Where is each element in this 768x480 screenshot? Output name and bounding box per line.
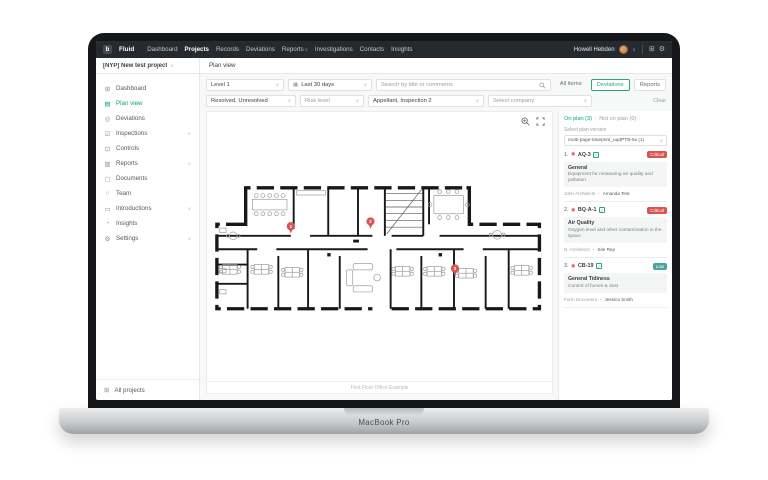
documents-icon: ▢ xyxy=(104,175,111,183)
sidebar-all-projects[interactable]: ⊞All projects xyxy=(96,379,199,400)
search-input[interactable] xyxy=(381,82,536,88)
chevron-down-icon: ∨ xyxy=(188,131,191,137)
nav-item-deviations[interactable]: Deviations xyxy=(246,46,275,53)
card-title: General xyxy=(568,165,663,171)
deviation-card[interactable]: 1. ◉ AQ-3 ✓ Critical General Equipment f… xyxy=(564,146,667,202)
card-description: Equipment for measuring air quality and … xyxy=(568,172,663,184)
svg-text:3: 3 xyxy=(454,266,457,272)
laptop-screen-frame: b Fluid Dashboard Projects Records Devia… xyxy=(88,33,680,408)
card-header: 1. ◉ AQ-3 ✓ Critical xyxy=(564,151,667,158)
filter-row-1: Level 1∨ ▦Last 30 days∨ All items Deviat… xyxy=(206,79,666,91)
gear-icon[interactable]: ⚙ xyxy=(659,46,665,53)
card-reporter: Jessica Smith xyxy=(605,297,633,302)
sidebar-item-settings[interactable]: ⚙Settings∨ xyxy=(96,231,199,246)
calendar-icon: ▦ xyxy=(293,82,298,88)
insights-icon: ◔ xyxy=(104,220,111,227)
dot-separator: • xyxy=(598,191,600,196)
all-projects-label: All projects xyxy=(114,387,144,394)
breadcrumb: Plan view xyxy=(200,58,244,73)
sidebar-item-label: Insights xyxy=(116,220,137,227)
sidebar-item-label: Settings xyxy=(116,235,138,242)
chevron-down-icon: ∨ xyxy=(476,98,479,104)
nav-right-group: Howell Hebden ∨ ⊞ ⚙ xyxy=(574,45,665,54)
sidebar-item-label: Deviations xyxy=(116,115,145,122)
card-number: 2. xyxy=(564,207,569,213)
sidebar-item-introductions[interactable]: ▭Introductions∨ xyxy=(96,201,199,216)
plan-tools xyxy=(521,117,545,126)
deviation-card[interactable]: 3. ◉ CB-19 ✓ Low General Tidiness Contro… xyxy=(564,258,667,308)
nav-item-dashboard[interactable]: Dashboard xyxy=(147,46,177,53)
svg-text:2: 2 xyxy=(369,219,372,225)
sidebar-item-label: Controls xyxy=(116,145,139,152)
checkbox-icon[interactable]: ✓ xyxy=(593,152,599,158)
sidebar-item-label: Reports xyxy=(116,160,138,167)
checkbox-icon[interactable]: ✓ xyxy=(596,263,602,269)
inspections-icon: ☑ xyxy=(104,130,111,138)
fullscreen-icon[interactable] xyxy=(536,117,545,126)
tab-deviations[interactable]: Deviations xyxy=(591,79,630,91)
sidebar-item-label: Plan view xyxy=(116,100,142,107)
chevron-down-icon: ∨ xyxy=(170,63,173,69)
plan-card: 1 2 3 xyxy=(206,111,553,394)
tab-on-plan[interactable]: On plan (3) xyxy=(564,116,592,122)
company-placeholder: Select company xyxy=(493,98,534,104)
introductions-icon: ▭ xyxy=(104,205,111,213)
sidebar-item-documents[interactable]: ▢Documents xyxy=(96,171,199,186)
team-icon: ○ xyxy=(104,190,111,197)
card-assignee: Form Document xyxy=(564,297,597,302)
card-body: General Equipment for measuring air qual… xyxy=(564,162,667,188)
settings-icon: ⚙ xyxy=(104,235,111,243)
card-footer: N. Architects • Site Rep xyxy=(564,247,667,252)
card-description: Oxygen level and other contamination in … xyxy=(568,228,663,240)
plan-area: 1 2 3 xyxy=(206,111,558,400)
company-select[interactable]: Select company∨ xyxy=(488,95,592,107)
card-code: BQ-A-1 xyxy=(578,207,597,213)
card-code: CB-19 xyxy=(578,263,594,269)
card-footer: John Architects • Amanda Test xyxy=(564,191,667,196)
dot-separator: • xyxy=(593,247,595,252)
sidebar-item-insights[interactable]: ◔Insights xyxy=(96,216,199,231)
user-name: Howell Hebden xyxy=(574,47,615,53)
sidebar: ⊞Dashboard ▤Plan view ◎Deviations ☑Inspe… xyxy=(96,74,200,400)
status-select-value: Resolved, Unresolved xyxy=(211,98,268,104)
level-select[interactable]: Level 1∨ xyxy=(206,79,284,91)
nav-item-reports[interactable]: Reports∨ xyxy=(282,46,308,53)
sidebar-item-plan-view[interactable]: ▤Plan view xyxy=(96,96,199,111)
tab-all-items[interactable]: All items xyxy=(555,79,587,91)
app-body: ⊞Dashboard ▤Plan view ◎Deviations ☑Inspe… xyxy=(96,74,672,400)
chevron-down-icon: ∨ xyxy=(188,206,191,212)
status-badge: Critical xyxy=(647,151,667,158)
sidebar-item-controls[interactable]: ⊡Controls xyxy=(96,141,199,156)
status-badge: Low xyxy=(653,263,667,270)
all-projects-icon: ⊞ xyxy=(104,386,109,394)
tab-reports[interactable]: Reports xyxy=(634,79,666,91)
content-row: 1 2 3 xyxy=(206,111,672,400)
dashboard-icon: ⊞ xyxy=(104,85,111,93)
divider xyxy=(642,45,643,54)
status-select[interactable]: Resolved, Unresolved∨ xyxy=(206,95,296,107)
chevron-down-icon: ∨ xyxy=(305,47,308,52)
sidebar-item-label: Introductions xyxy=(116,205,151,212)
card-code: AQ-3 xyxy=(578,152,591,158)
chevron-down-icon: ∨ xyxy=(364,82,367,88)
card-reporter: Site Rep xyxy=(597,247,615,252)
card-header: 3. ◉ CB-19 ✓ Low xyxy=(564,263,667,270)
nav-item-contacts[interactable]: Contacts xyxy=(360,46,384,53)
laptop-notch xyxy=(344,408,424,415)
nav-item-investigations[interactable]: Investigations xyxy=(315,46,353,53)
chevron-down-icon[interactable]: ∨ xyxy=(633,47,636,53)
chevron-down-icon: ∨ xyxy=(288,98,291,104)
card-title: Air Quality xyxy=(568,220,663,226)
filter-row-2: Resolved, Unresolved∨ Risk level∨ Appell… xyxy=(206,95,666,107)
card-description: Control of fumes & dust xyxy=(568,284,663,290)
tab-not-on-plan[interactable]: Not on plan (0) xyxy=(599,116,636,122)
divider: | xyxy=(595,116,596,122)
sidebar-item-team[interactable]: ○Team xyxy=(96,186,199,201)
macbook-label: MacBook Pro xyxy=(59,418,709,427)
nav-reports-label: Reports xyxy=(282,46,304,53)
nav-item-insights[interactable]: Insights xyxy=(391,46,412,53)
laptop-base: MacBook Pro xyxy=(59,408,709,434)
sidebar-item-dashboard[interactable]: ⊞Dashboard xyxy=(96,81,199,96)
plan-version-select[interactable]: multi-page-blueprint_uqdPTB-5x (1) ∨ xyxy=(564,135,667,146)
card-assignee: N. Architects xyxy=(564,247,590,252)
card-number: 3. xyxy=(564,263,569,269)
reports-icon: ▥ xyxy=(104,160,111,168)
status-badge: Critical xyxy=(647,207,667,214)
sidebar-item-inspections[interactable]: ☑Inspections∨ xyxy=(96,126,199,141)
deviation-dot-icon: ◉ xyxy=(571,264,575,269)
app-screen: b Fluid Dashboard Projects Records Devia… xyxy=(96,41,672,400)
plan-version-value: multi-page-blueprint_uqdPTB-5x (1) xyxy=(568,138,658,143)
chevron-down-icon: ∨ xyxy=(660,138,663,144)
level-select-value: Level 1 xyxy=(211,82,230,88)
chevron-down-icon: ∨ xyxy=(356,98,359,104)
top-navigation: b Fluid Dashboard Projects Records Devia… xyxy=(96,41,672,58)
chevron-down-icon: ∨ xyxy=(584,98,587,104)
svg-text:1: 1 xyxy=(289,224,292,230)
project-name: [NYP] New test project xyxy=(103,63,167,69)
search-box xyxy=(376,79,551,91)
risk-level-select[interactable]: Risk level∨ xyxy=(300,95,364,107)
inspection-select[interactable]: Appellant, Inspection 2∨ xyxy=(368,95,484,107)
checkbox-icon[interactable]: ✓ xyxy=(599,207,605,213)
card-title: General Tidiness xyxy=(568,276,663,282)
deviations-icon: ◎ xyxy=(104,115,111,123)
date-range-value: Last 30 days xyxy=(301,82,334,88)
chevron-down-icon: ∨ xyxy=(188,236,191,242)
card-header: 2. ◉ BQ-A-1 ✓ Critical xyxy=(564,207,667,214)
apps-grid-icon[interactable]: ⊞ xyxy=(649,46,655,53)
project-bar: [NYP] New test project ∨ Plan view xyxy=(96,58,672,74)
project-switcher[interactable]: [NYP] New test project ∨ xyxy=(96,58,200,73)
risk-level-placeholder: Risk level xyxy=(305,98,330,104)
card-assignee: John Architects xyxy=(564,191,595,196)
clear-filters-link[interactable]: Clear xyxy=(653,98,666,104)
floor-plan: 1 2 3 xyxy=(214,183,545,314)
plan-version-label: Select plan version xyxy=(564,127,667,133)
date-range-select[interactable]: ▦Last 30 days∨ xyxy=(288,79,372,91)
app-logo-icon: b xyxy=(103,45,112,54)
items-panel: On plan (3) | Not on plan (0) Select pla… xyxy=(558,111,672,400)
nav-item-records[interactable]: Records xyxy=(216,46,239,53)
search-icon xyxy=(539,82,546,89)
deviation-dot-icon: ◉ xyxy=(571,152,575,157)
card-body: General Tidiness Control of fumes & dust xyxy=(564,273,667,293)
inspection-select-value: Appellant, Inspection 2 xyxy=(373,98,432,104)
user-avatar[interactable] xyxy=(619,45,628,54)
sidebar-item-deviations[interactable]: ◎Deviations xyxy=(96,111,199,126)
card-number: 1. xyxy=(564,152,569,158)
sidebar-item-label: Inspections xyxy=(116,130,147,137)
card-body: Air Quality Oxygen level and other conta… xyxy=(564,217,667,243)
plan-caption: First Floor Office Example xyxy=(207,381,552,393)
dot-separator: • xyxy=(600,297,602,302)
deviation-dot-icon: ◉ xyxy=(571,208,575,213)
controls-icon: ⊡ xyxy=(104,145,111,153)
main-content: Level 1∨ ▦Last 30 days∨ All items Deviat… xyxy=(200,74,672,400)
deviation-card[interactable]: 2. ◉ BQ-A-1 ✓ Critical Air Quality Oxyge… xyxy=(564,202,667,258)
chevron-down-icon: ∨ xyxy=(276,82,279,88)
sidebar-item-label: Documents xyxy=(116,175,147,182)
panel-tabs: On plan (3) | Not on plan (0) xyxy=(564,116,667,122)
plan-icon: ▤ xyxy=(104,100,111,108)
chevron-down-icon: ∨ xyxy=(188,161,191,167)
zoom-in-icon[interactable] xyxy=(521,117,530,126)
card-reporter: Amanda Test xyxy=(603,191,630,196)
sidebar-item-label: Dashboard xyxy=(116,85,146,92)
nav-item-projects[interactable]: Projects xyxy=(185,46,209,53)
sidebar-item-label: Team xyxy=(116,190,131,197)
card-footer: Form Document • Jessica Smith xyxy=(564,297,667,302)
app-logo-text[interactable]: Fluid xyxy=(119,46,134,53)
sidebar-item-reports[interactable]: ▥Reports∨ xyxy=(96,156,199,171)
